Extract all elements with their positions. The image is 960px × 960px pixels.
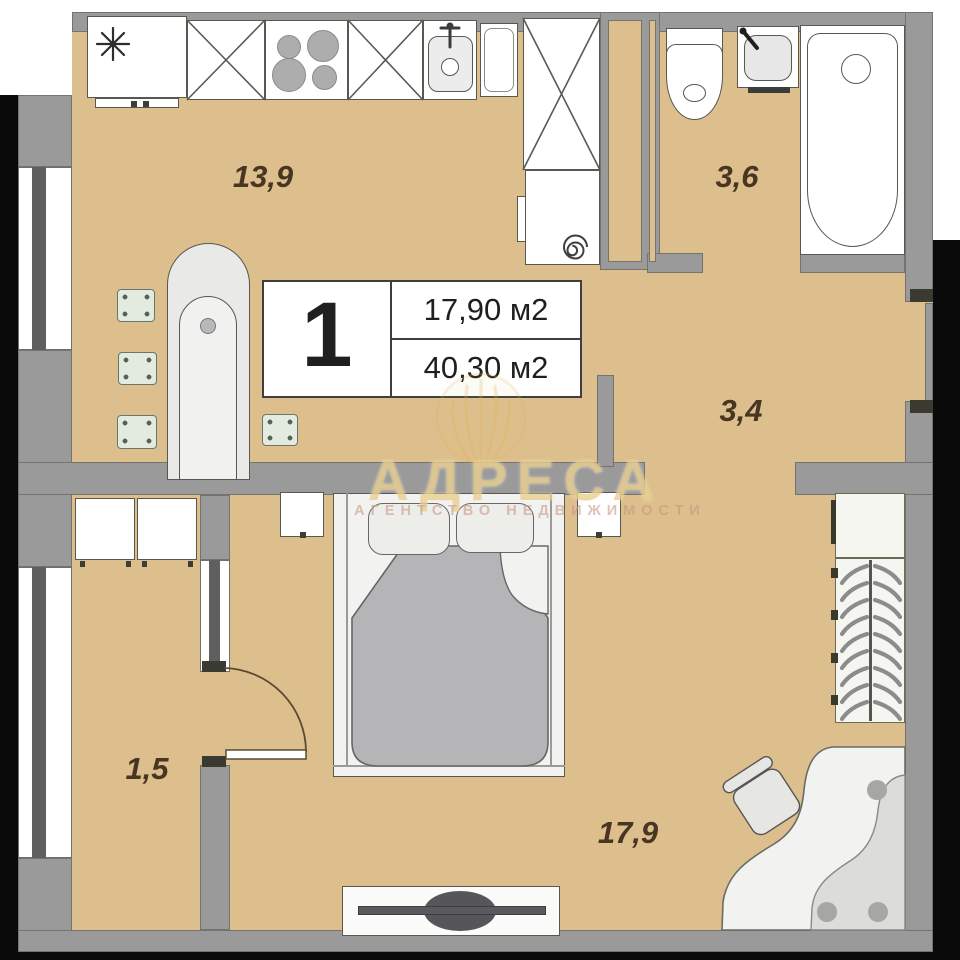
balcony-cabinet-dot-3 [142,561,147,567]
window-partition-sash [209,560,220,672]
wall-balcony-divider-upper [200,495,230,560]
balcony-cabinet-dot-4 [188,561,193,567]
rooms-count: 1 [264,282,392,396]
wardrobe-hinge-bar [831,500,836,544]
balcony-cabinet-2 [137,498,197,560]
nightstand-left-dot [300,532,306,538]
stool-2 [118,352,157,385]
kitchen-cabinet-1 [187,20,265,100]
window-kitchen-sash [32,167,46,350]
fridge-hinge-dot-2 [143,101,149,107]
edge-black-bottom [0,952,960,960]
edge-black-left [0,95,18,960]
wall-bathroom-b [800,253,905,273]
entrance-door-leaf [925,303,933,401]
wall-balcony-divider-lower [200,765,230,930]
wall-hallway-bedroom [795,462,933,495]
balcony-door-jamb-bottom [202,756,226,767]
vent-slot-1 [608,20,642,262]
wall-right-upper [905,12,933,302]
bed-footboard-line [333,765,565,767]
fridge-door-lip [95,98,179,108]
margin-top-left [0,0,72,95]
balcony-cabinet-1 [75,498,135,560]
stove-burner-4 [312,65,337,90]
vent-slot-2 [649,20,656,262]
label-balcony-area: 1,5 [125,751,168,787]
balcony-cabinet-dot-2 [126,561,131,567]
stool-1 [117,289,155,322]
wall-left-1 [18,95,72,167]
label-living-room-area: 17,9 [598,815,658,851]
label-bathroom-area: 3,6 [715,159,758,195]
wardrobe-hinge-3 [831,653,838,663]
fridge-hinge-dot-1 [131,101,137,107]
label-hallway-area: 3,4 [719,393,762,429]
fridge [87,16,187,98]
wardrobe-hinge-2 [831,610,838,620]
stool-4 [262,414,298,446]
nightstand-left [280,492,324,537]
nightstand-right-dot [596,532,602,538]
edge-black-right [933,240,960,960]
bed-rail-left [346,493,348,765]
margin-top-right [933,0,960,240]
kitchen-sink-drain [441,58,459,76]
balcony-cabinet-dot-1 [80,561,85,567]
bed-rail-right [550,493,552,765]
entrance-door-jamb-top [910,289,933,302]
living-area-value: 17,90 м2 [392,282,580,338]
window-balcony-sash [32,567,46,858]
washing-machine [525,170,600,265]
wardrobe-hinge-4 [831,695,838,705]
lounge-chair-knob [200,318,216,334]
entrance-door-jamb-bottom [910,400,933,413]
tall-cabinet [523,18,600,170]
washbasin-foot [748,87,790,93]
watermark-subtitle: АГЕНТСТВО НЕДВИЖИМОСТИ [320,503,740,519]
counter-cabinet-inner [484,28,514,92]
wardrobe-rail [869,560,872,721]
stool-3 [117,415,157,449]
balcony-door-jamb-top [202,661,226,672]
wardrobe-shelf-divider [835,557,905,559]
stove-burner-3 [272,58,306,92]
margin-top [0,0,960,12]
label-kitchen-area: 13,9 [233,159,293,195]
toilet-bowl-opening [683,84,706,102]
washbasin-bowl [744,35,792,81]
bathtub-drain [841,54,871,84]
floor-plan: 13,9 3,6 3,4 1,5 17,9 1 17,90 м2 40,30 м… [0,0,960,960]
stove-burner-1 [277,35,301,59]
wall-left-2 [18,350,72,567]
tv-soundbar [358,906,546,915]
kitchen-cabinet-2 [348,20,423,100]
stove-burner-2 [307,30,339,62]
wardrobe-hinge-1 [831,568,838,578]
washing-machine-handle [517,196,526,242]
